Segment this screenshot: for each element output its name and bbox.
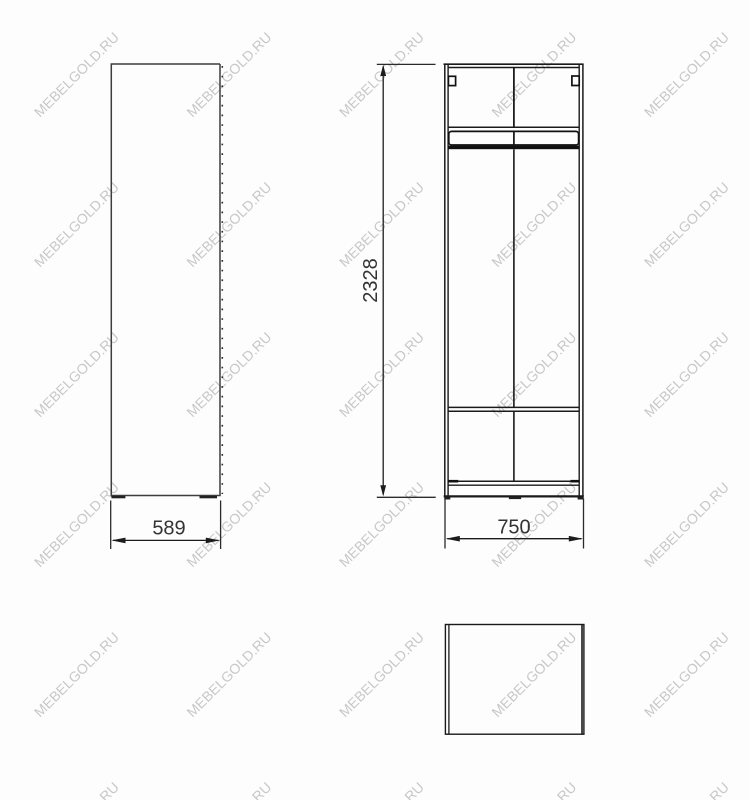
svg-text:MEBELGOLD.RU: MEBELGOLD.RU [641, 479, 732, 570]
svg-text:MEBELGOLD.RU: MEBELGOLD.RU [336, 329, 427, 420]
svg-text:MEBELGOLD.RU: MEBELGOLD.RU [641, 29, 732, 120]
svg-text:MEBELGOLD.RU: MEBELGOLD.RU [31, 479, 122, 570]
svg-text:MEBELGOLD.RU: MEBELGOLD.RU [336, 479, 427, 570]
svg-text:MEBELGOLD.RU: MEBELGOLD.RU [641, 179, 732, 270]
svg-text:589: 589 [152, 518, 185, 540]
svg-text:MEBELGOLD.RU: MEBELGOLD.RU [31, 29, 122, 120]
svg-text:MEBELGOLD.RU: MEBELGOLD.RU [488, 629, 579, 720]
svg-text:750: 750 [497, 517, 530, 539]
svg-text:MEBELGOLD.RU: MEBELGOLD.RU [336, 629, 427, 720]
svg-text:MEBELGOLD.RU: MEBELGOLD.RU [488, 329, 579, 420]
svg-text:MEBELGOLD.RU: MEBELGOLD.RU [641, 629, 732, 720]
svg-text:MEBELGOLD.RU: MEBELGOLD.RU [31, 629, 122, 720]
svg-text:MEBELGOLD.RU: MEBELGOLD.RU [183, 329, 274, 420]
svg-text:MEBELGOLD.RU: MEBELGOLD.RU [31, 179, 122, 270]
svg-text:MEBELGOLD.RU: MEBELGOLD.RU [183, 29, 274, 120]
svg-text:MEBELGOLD.RU: MEBELGOLD.RU [183, 479, 274, 570]
svg-text:MEBELGOLD.RU: MEBELGOLD.RU [641, 779, 732, 800]
svg-text:MEBELGOLD.RU: MEBELGOLD.RU [641, 329, 732, 420]
svg-text:MEBELGOLD.RU: MEBELGOLD.RU [336, 179, 427, 270]
svg-text:MEBELGOLD.RU: MEBELGOLD.RU [488, 779, 579, 800]
svg-text:MEBELGOLD.RU: MEBELGOLD.RU [488, 29, 579, 120]
svg-text:MEBELGOLD.RU: MEBELGOLD.RU [336, 779, 427, 800]
svg-text:MEBELGOLD.RU: MEBELGOLD.RU [31, 779, 122, 800]
svg-text:MEBELGOLD.RU: MEBELGOLD.RU [488, 179, 579, 270]
svg-text:2328: 2328 [360, 258, 382, 303]
svg-text:MEBELGOLD.RU: MEBELGOLD.RU [183, 179, 274, 270]
svg-text:MEBELGOLD.RU: MEBELGOLD.RU [183, 779, 274, 800]
svg-text:MEBELGOLD.RU: MEBELGOLD.RU [31, 329, 122, 420]
svg-text:MEBELGOLD.RU: MEBELGOLD.RU [183, 629, 274, 720]
